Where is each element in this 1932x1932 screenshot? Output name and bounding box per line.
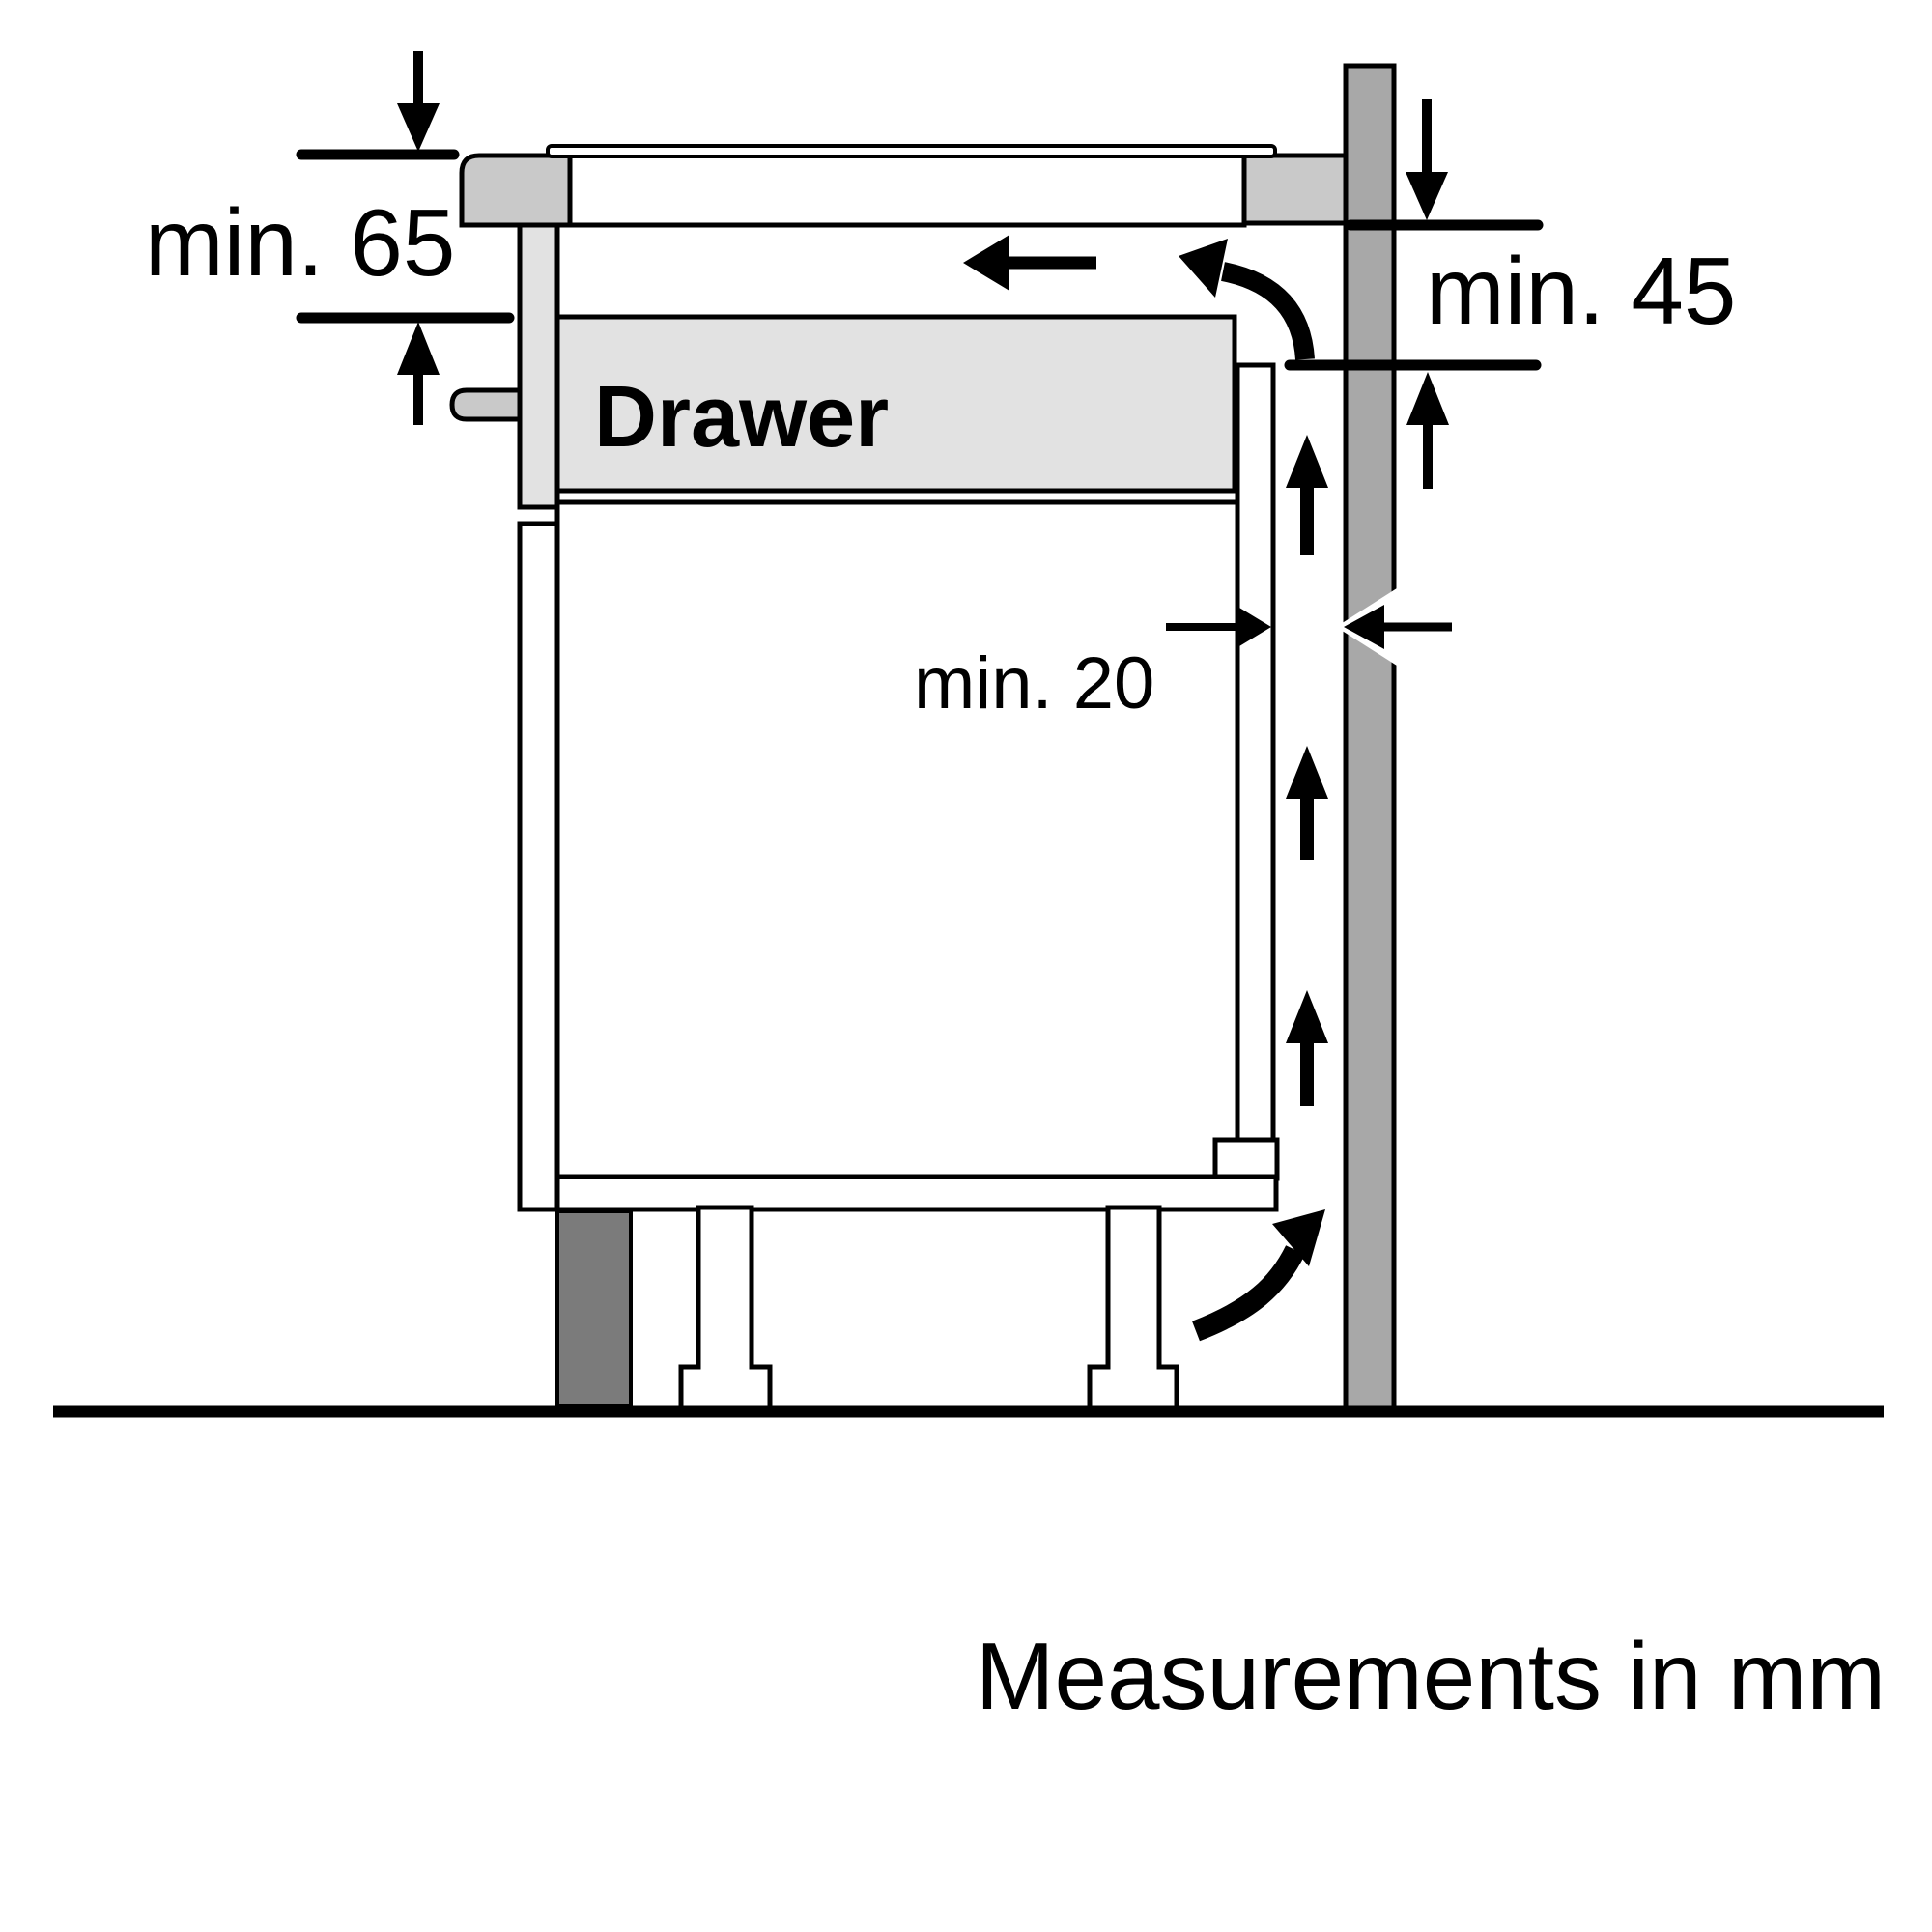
installation-diagram: min. 65 min. 45 min. 20 Drawer Measureme… bbox=[0, 0, 1932, 1932]
plinth bbox=[557, 1211, 631, 1406]
worktop bbox=[570, 156, 1244, 225]
airflow-up-arrow-1-head-icon bbox=[1286, 435, 1328, 488]
min45-label: min. 45 bbox=[1426, 243, 1736, 338]
hob-front-edge bbox=[462, 156, 570, 225]
min65-label: min. 65 bbox=[145, 195, 455, 290]
cabinet-front-panel bbox=[520, 524, 557, 1209]
wall bbox=[1346, 66, 1394, 1411]
fixing-screw-tab bbox=[452, 390, 526, 419]
drawer-label: Drawer bbox=[594, 374, 889, 461]
cabinet-bottom-panel bbox=[557, 1177, 1276, 1209]
cabinet-interior bbox=[557, 502, 1237, 1179]
cabinet-back-panel bbox=[1237, 365, 1273, 1142]
min45-upper-arrow-down-icon bbox=[1406, 172, 1448, 220]
measurements-footer-label: Measurements in mm bbox=[773, 1629, 1886, 1723]
cabinet-leg-front bbox=[681, 1207, 770, 1407]
airflow-up-arrow-3-head-icon bbox=[1286, 990, 1328, 1043]
hob-glass-top bbox=[548, 146, 1275, 156]
airflow-arrow-left-icon bbox=[963, 235, 1009, 291]
airflow-up-arrow-2-head-icon bbox=[1286, 746, 1328, 799]
min20-label: min. 20 bbox=[914, 647, 1154, 721]
min65-upper-arrow-down-icon bbox=[397, 103, 440, 152]
airflow-curve-bottom bbox=[1196, 1250, 1295, 1331]
min45-lower-arrow-up-icon bbox=[1406, 372, 1449, 425]
worktop-end-block bbox=[1244, 156, 1346, 223]
hob-bracket-strip bbox=[520, 225, 557, 507]
min65-lower-arrow-up-icon bbox=[397, 322, 440, 375]
cabinet-leg-rear bbox=[1090, 1207, 1177, 1407]
cabinet-back-panel-foot bbox=[1215, 1140, 1277, 1179]
airflow-curve-top-head-icon bbox=[1179, 239, 1228, 298]
